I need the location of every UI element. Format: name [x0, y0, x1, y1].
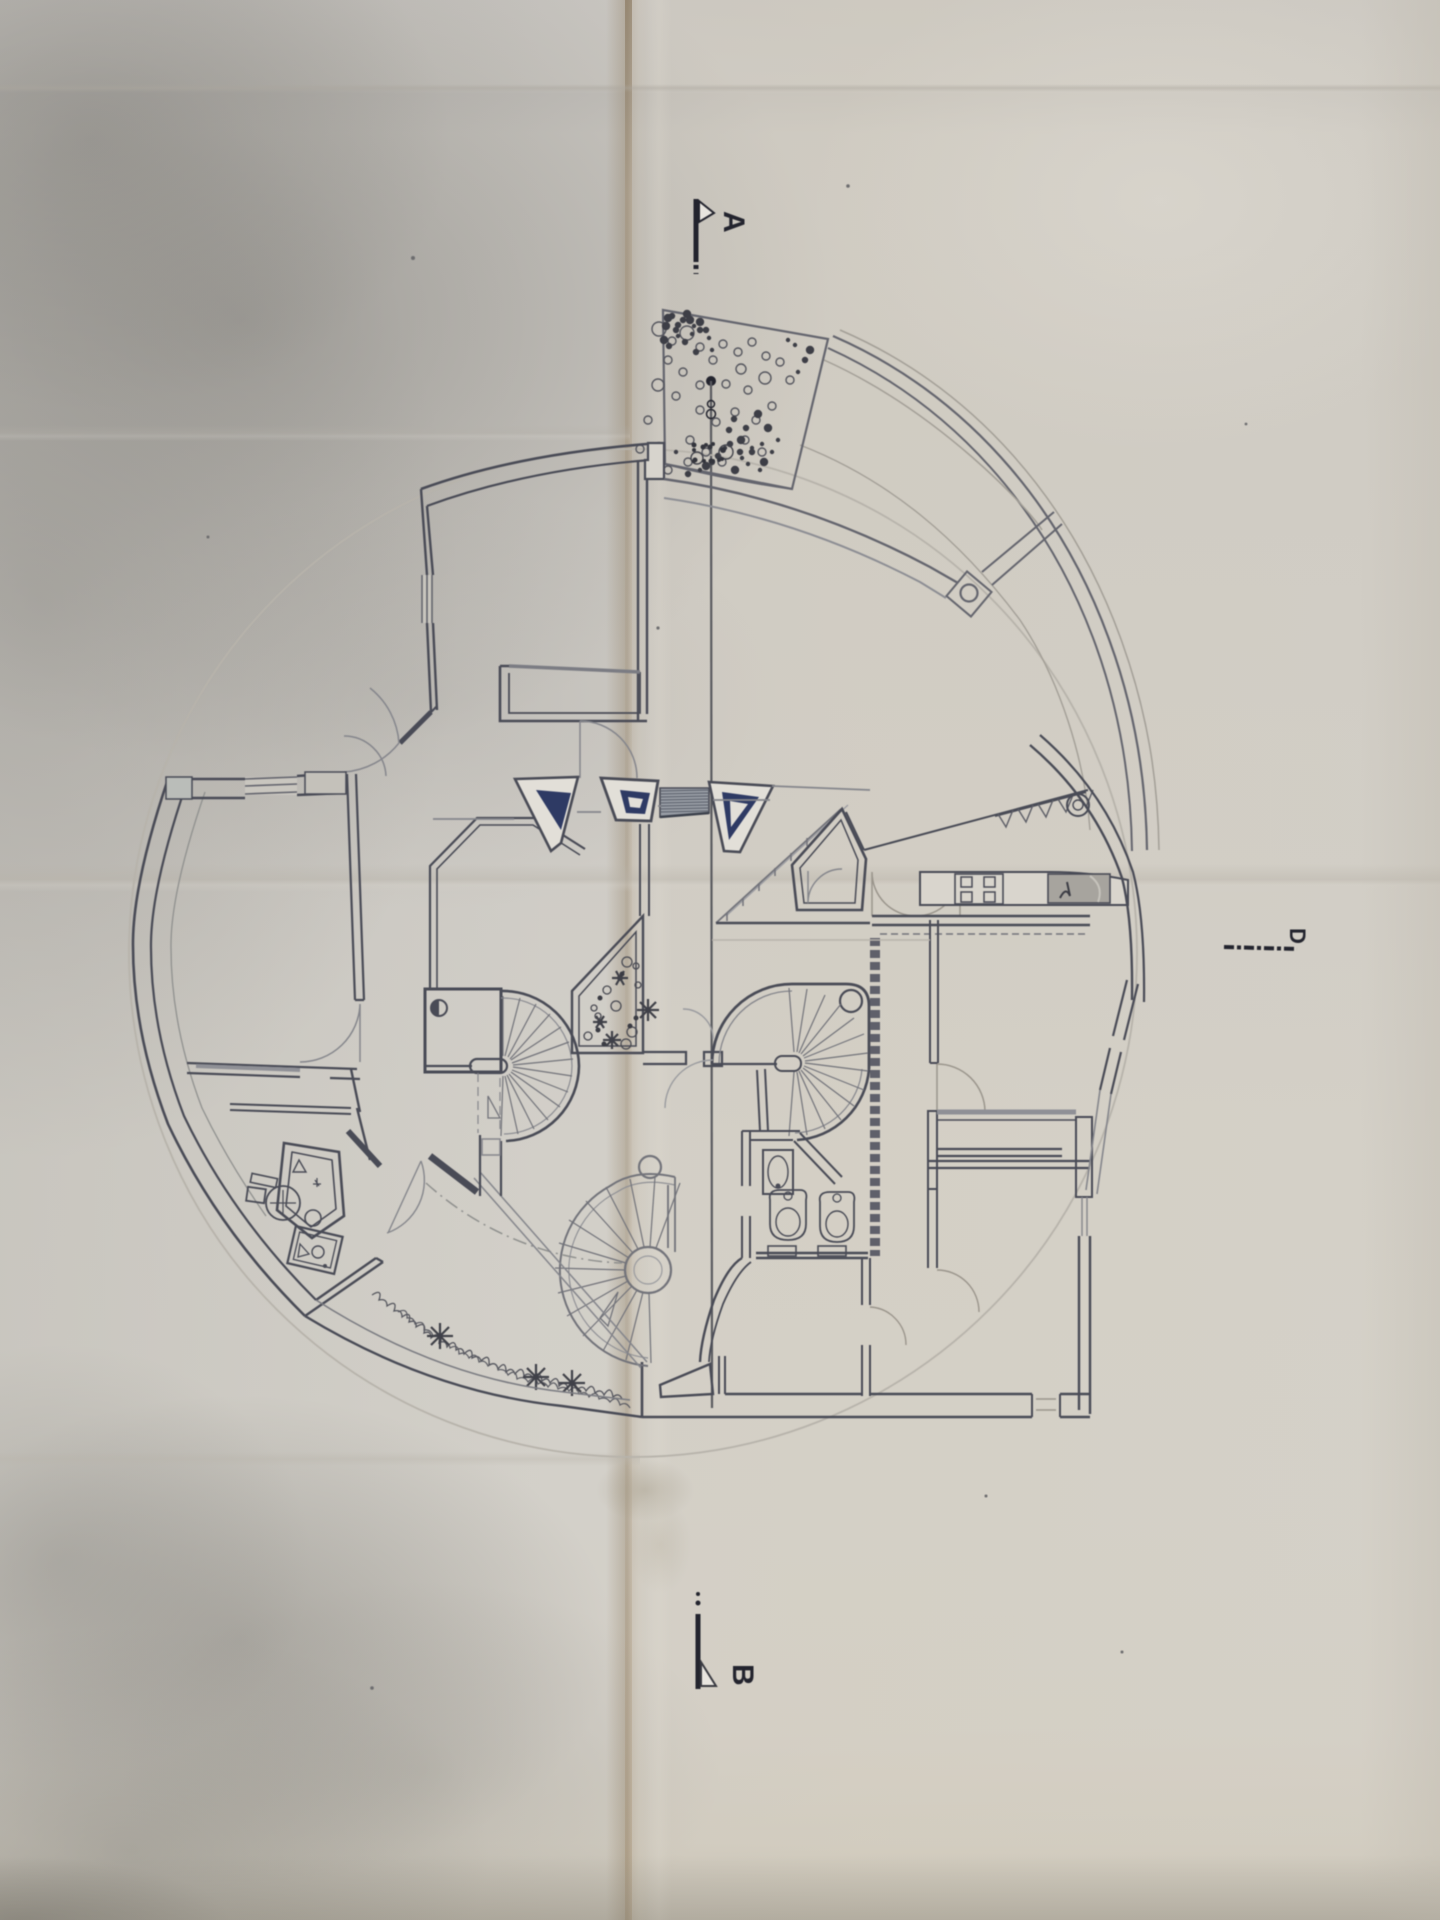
- svg-text:D: D: [1285, 928, 1310, 944]
- svg-text:A: A: [717, 211, 750, 233]
- svg-text:B: B: [726, 1664, 759, 1686]
